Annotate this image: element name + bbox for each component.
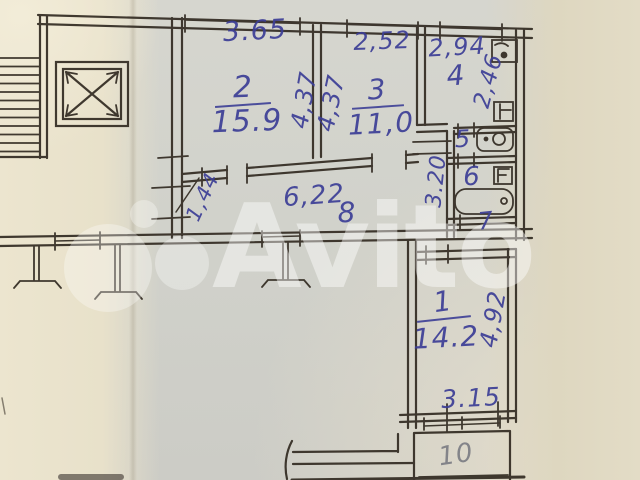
room-1-number: 1 bbox=[432, 287, 455, 317]
dim-bath-side: 3.20 bbox=[423, 154, 450, 209]
watermark-logo-circle bbox=[130, 200, 158, 228]
room-7-number: 7 bbox=[477, 208, 496, 234]
room-4-number: 4 bbox=[445, 61, 466, 91]
staircase-icon bbox=[0, 16, 47, 158]
dim-room1-bottom: 3.15 bbox=[441, 384, 502, 412]
room-1-area: 14.2 bbox=[412, 322, 480, 353]
room-2-number: 2 bbox=[232, 73, 253, 104]
room-3-area: 11,0 bbox=[347, 108, 415, 139]
room-2-area: 15.9 bbox=[211, 106, 283, 138]
watermark-logo-circle bbox=[155, 236, 209, 290]
room-5-number: 5 bbox=[454, 127, 471, 152]
room-6-number: 6 bbox=[463, 164, 481, 191]
elevator-shaft-icon bbox=[56, 62, 128, 126]
dim-room3-top: 2,52 bbox=[353, 28, 411, 54]
dim-room2-top: 3.65 bbox=[222, 16, 287, 46]
room-10-number: 10 bbox=[437, 440, 475, 471]
paper-marks bbox=[2, 398, 124, 480]
floor-plan-photo: Avito 3.65 2,52 2,94 4,37 4,37 2,46 3.20… bbox=[0, 0, 640, 480]
left-balcony-outline bbox=[286, 434, 414, 479]
room-3-number: 3 bbox=[367, 76, 387, 105]
watermark-logo-circle bbox=[64, 224, 152, 312]
balcony-10-outline bbox=[292, 431, 524, 480]
room-8-number: 8 bbox=[337, 199, 357, 228]
dim-hall-top: 2,94 bbox=[428, 34, 487, 61]
